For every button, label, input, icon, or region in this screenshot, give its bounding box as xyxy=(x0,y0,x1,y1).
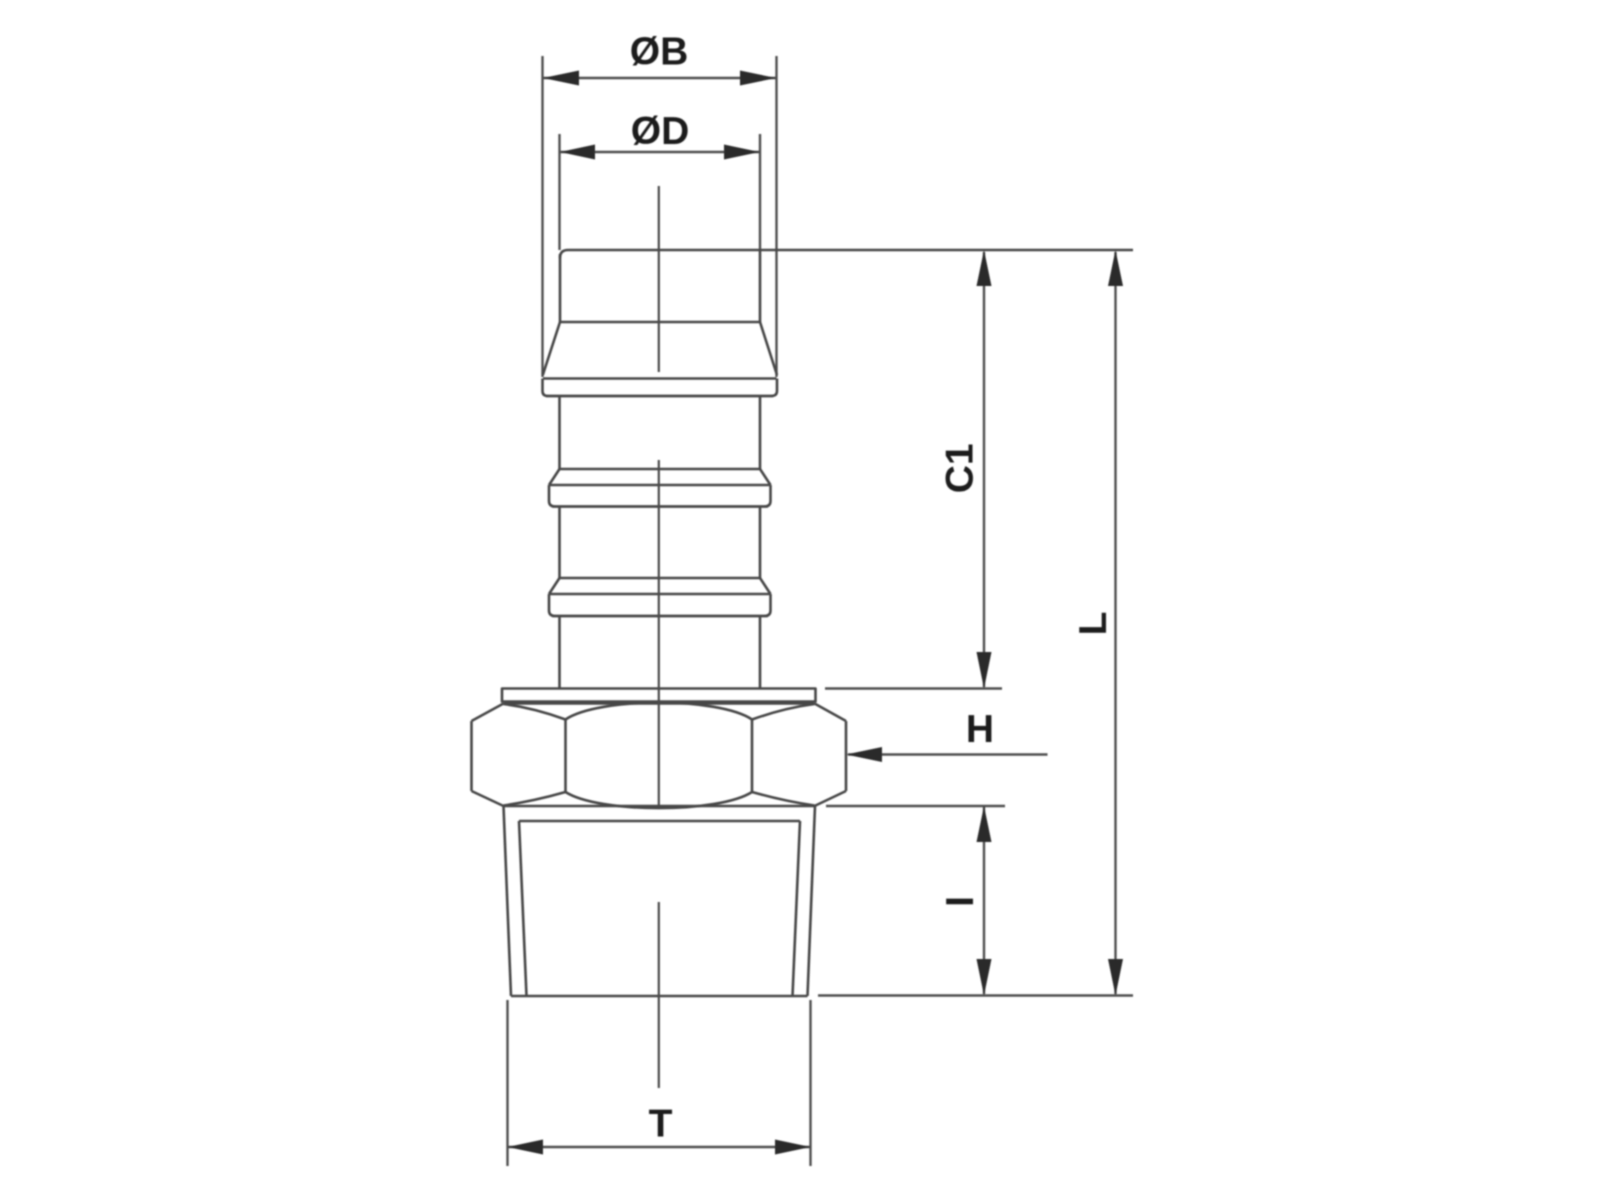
svg-text:ØB: ØB xyxy=(630,31,689,74)
svg-text:C1: C1 xyxy=(938,443,981,493)
svg-text:H: H xyxy=(966,708,994,751)
svg-text:T: T xyxy=(649,1103,673,1146)
svg-text:ØD: ØD xyxy=(631,110,690,153)
svg-text:I: I xyxy=(939,896,982,907)
svg-text:L: L xyxy=(1072,612,1115,636)
